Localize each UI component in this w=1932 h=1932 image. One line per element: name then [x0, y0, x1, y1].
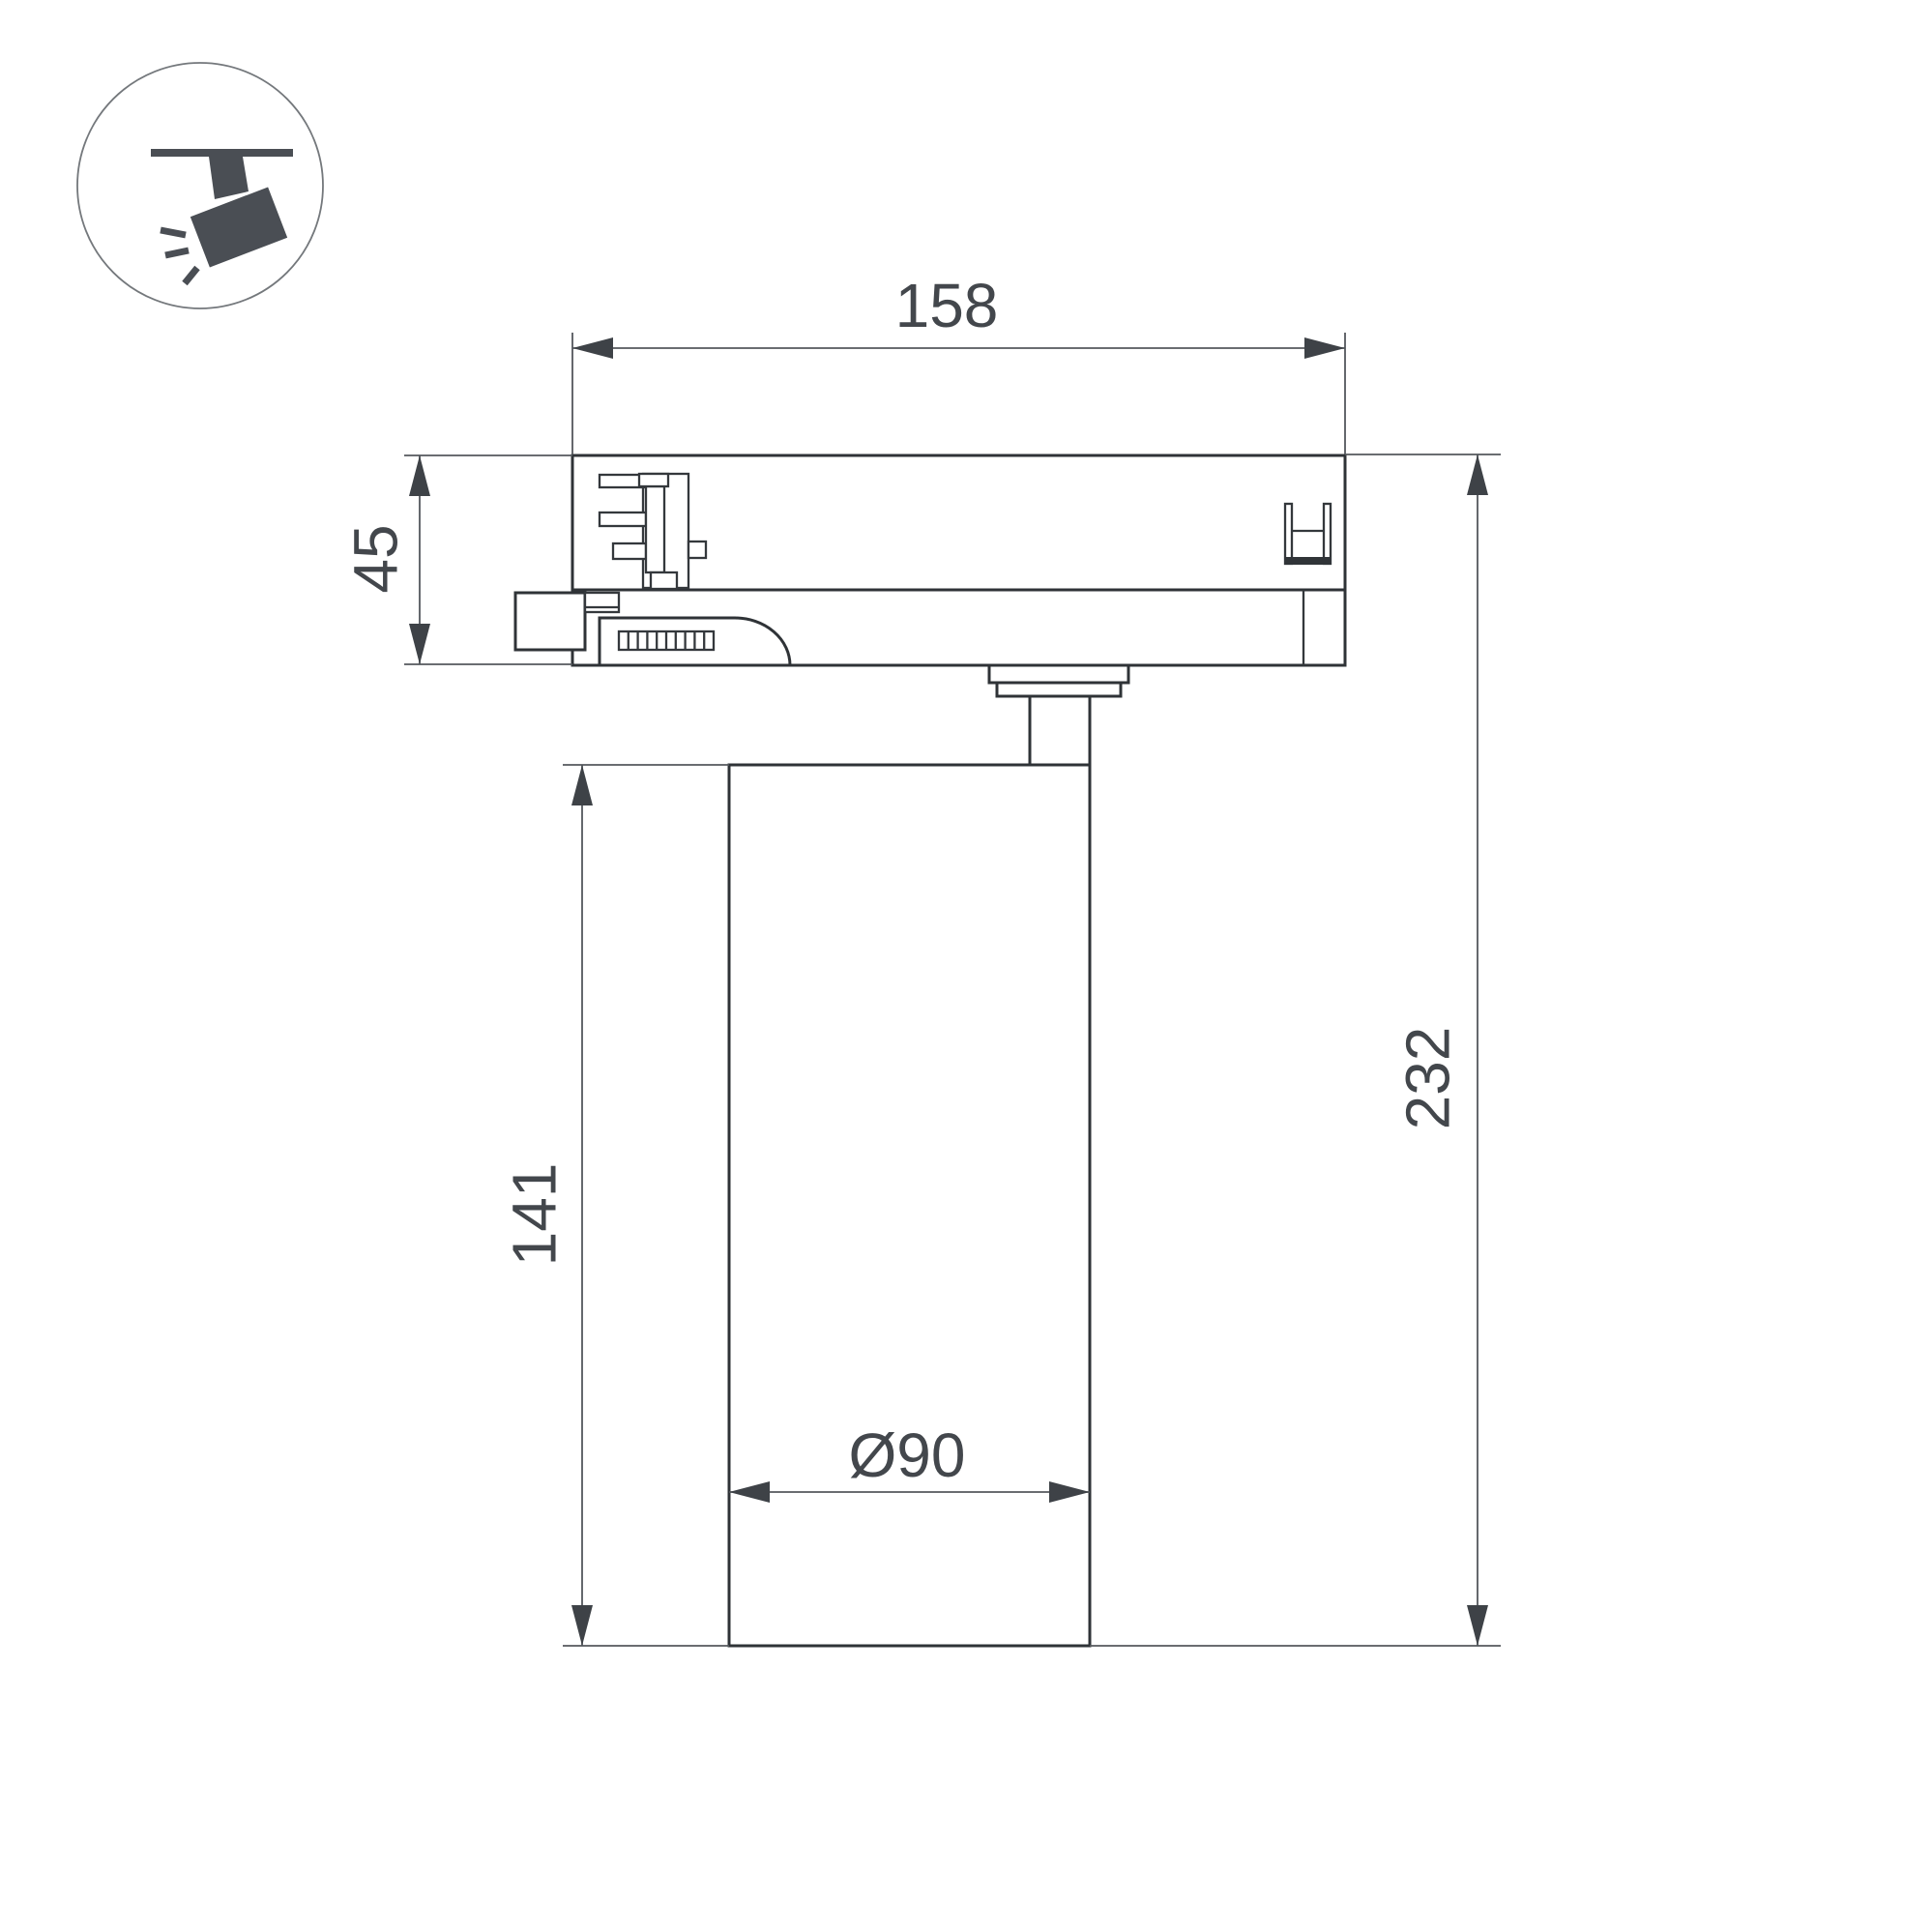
connector-prong-middle [600, 512, 646, 526]
track-adapter [515, 455, 1345, 665]
lamp-cylinder-body [729, 765, 1090, 1646]
u-bracket-left-wall [1285, 504, 1292, 564]
dim-label-diameter-90: Ø90 [849, 1420, 966, 1490]
latch-tab [585, 593, 619, 612]
dim-arrow-left [572, 337, 613, 359]
connector-prong-bottom [613, 543, 646, 559]
adapter-rounded-body [600, 618, 790, 665]
connector-prong-top [600, 475, 644, 487]
dim-body-height: 141 [499, 765, 729, 1646]
icon-stem [209, 157, 249, 199]
flange-step-1 [989, 665, 1128, 683]
icon-track-bar [151, 149, 293, 157]
drawing-page: 158 45 141 232 [0, 0, 1932, 1932]
icon-light-ray [165, 250, 189, 255]
connector-right-tab [688, 542, 706, 558]
dim-label-141: 141 [499, 1163, 569, 1267]
track-spotlight-icon [77, 63, 323, 308]
dim-label-158: 158 [895, 271, 999, 340]
connector-foot [651, 572, 677, 589]
latch-box [515, 593, 585, 650]
dim-arrow-up [409, 455, 430, 496]
flange-step-2 [997, 683, 1121, 696]
dim-arrow-down [1467, 1605, 1488, 1646]
connector-post-cap [639, 474, 668, 486]
dim-arrow-up [571, 765, 593, 805]
dim-arrow-down [571, 1605, 593, 1646]
mount-stem [989, 665, 1128, 765]
icon-circle [77, 63, 323, 308]
dimension-drawing: 158 45 141 232 [0, 0, 1932, 1932]
dim-label-232: 232 [1392, 1027, 1462, 1130]
connector-post [646, 486, 664, 572]
dim-track-adapter-width: 158 [572, 271, 1345, 454]
dim-arrow-down [409, 624, 430, 664]
dim-label-45: 45 [340, 524, 410, 593]
dim-arrow-up [1467, 454, 1488, 495]
u-bracket-right-wall [1324, 504, 1331, 564]
icon-light-ray [161, 230, 186, 235]
u-bracket-bottom [1285, 557, 1331, 565]
stem-neck [1030, 696, 1090, 765]
dim-arrow-right [1304, 337, 1345, 359]
